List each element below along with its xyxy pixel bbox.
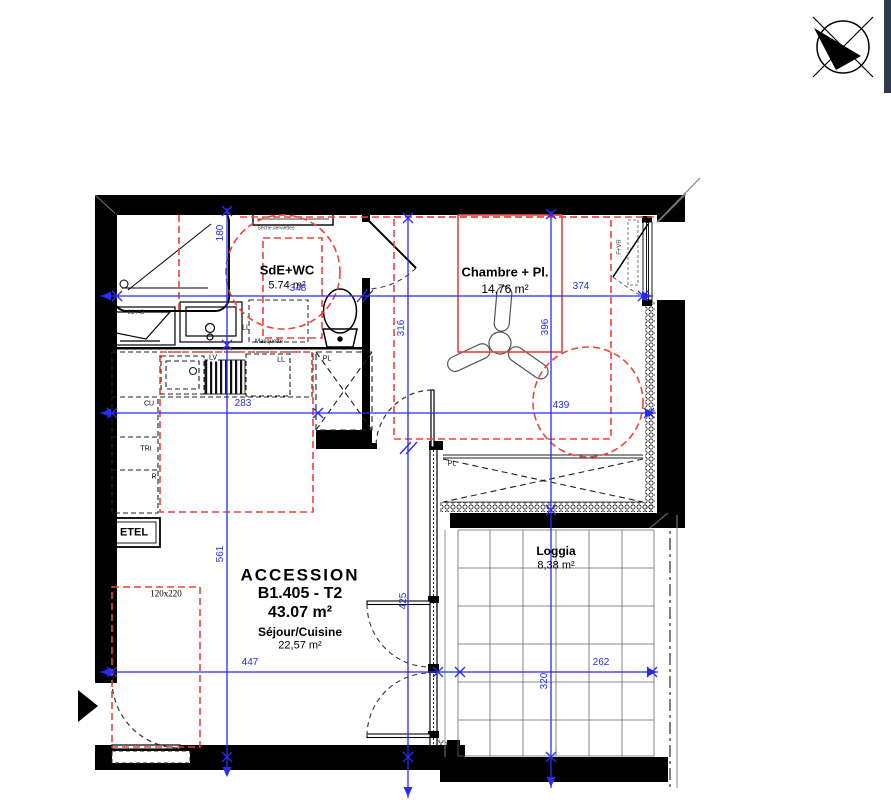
bedroom-area-label: 14,76 m²	[481, 283, 528, 295]
dim-283: 283	[235, 399, 252, 409]
towel-dryer-label: Sèche serviettes	[258, 227, 295, 232]
bedroom-window	[613, 220, 652, 300]
dim-262: 262	[593, 658, 610, 668]
floor-plan-drawing	[0, 0, 891, 800]
sorting-bin-label: TRI	[140, 446, 151, 453]
toilet	[323, 289, 357, 347]
walls	[95, 195, 685, 782]
dim-447: 447	[242, 658, 259, 668]
dim-439: 439	[553, 401, 570, 411]
dim-425: 425	[399, 593, 409, 610]
red-accessibility-zones	[112, 215, 656, 747]
property-limit-lines	[670, 515, 677, 790]
dishwasher-hatch	[205, 360, 245, 394]
bedroom-closet-label: PL	[448, 461, 457, 468]
dim-180: 180	[216, 225, 226, 242]
wall-corner-lines	[95, 178, 700, 528]
program-label: ACCESSION	[240, 567, 359, 584]
loggia-area-label: 8,38 m²	[537, 561, 574, 572]
dim-396: 396	[541, 319, 551, 336]
washbasin-label: 81 /43	[128, 310, 145, 316]
dishwasher-label: LV	[208, 355, 218, 362]
living-area-label: 22,57 m²	[278, 641, 321, 652]
dim-348: 348	[290, 284, 307, 294]
door-clearance-label: 120x220	[150, 590, 182, 599]
living-name-label: Séjour/Cuisine	[258, 626, 342, 638]
doors	[112, 218, 434, 749]
loggia-name-label: Loggia	[536, 545, 575, 557]
kitchen-unit-label: CU	[144, 401, 154, 408]
bathroom-name-label: SdE+WC	[260, 264, 315, 277]
vanity-unit	[180, 302, 242, 342]
floor-plan-page: SdE+WC 5.74 m² Chambre + Pl. 14,76 m² AC…	[0, 0, 891, 800]
dim-316: 316	[397, 320, 407, 337]
bathroom-washer-label: LL	[242, 325, 250, 332]
hall-closet-label: PL	[323, 356, 332, 363]
dim-320: 320	[540, 673, 550, 690]
entrance-radiator	[112, 751, 190, 763]
bathroom-washer-slot	[249, 300, 308, 342]
window-type-label: F+VR	[617, 239, 623, 255]
unit-number-label: B1.405 - T2	[258, 586, 342, 602]
north-arrow-icon	[813, 17, 873, 77]
masking-panel-label: Masquette	[255, 339, 283, 345]
fridge-label: R	[151, 474, 156, 481]
bedroom-name-label: Chambre + Pl.	[461, 266, 548, 279]
kitchen-washer-label: LL	[277, 357, 285, 364]
screen-edge-band	[884, 0, 891, 93]
dim-374: 374	[573, 282, 590, 292]
etel-label: ETEL	[120, 528, 148, 539]
entrance-arrow-icon	[78, 690, 98, 722]
unit-area-label: 43.07 m²	[268, 605, 332, 621]
dim-561: 561	[216, 546, 226, 563]
